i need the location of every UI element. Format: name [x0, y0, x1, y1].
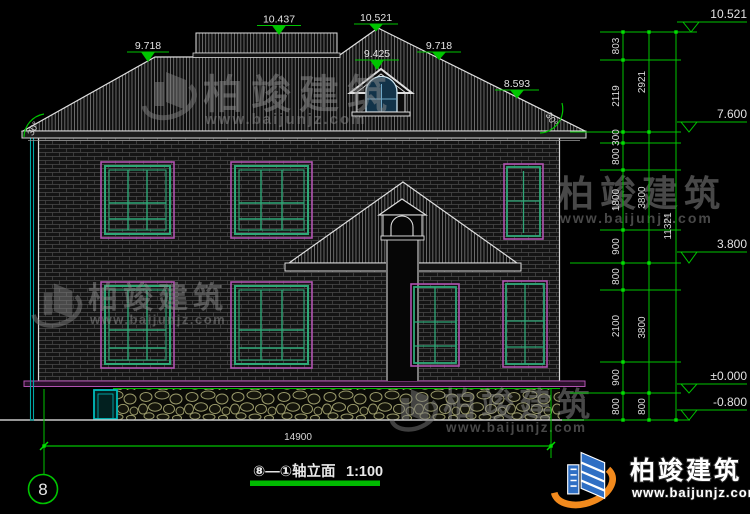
- level-triangle-icon: [681, 252, 697, 263]
- level-triangle-icon: [681, 410, 697, 420]
- elevation-drawing: 柏竣建筑 www.baijunjz.com 柏竣建筑 www.baijunjz.…: [0, 0, 750, 514]
- marker-value: 10.521: [360, 12, 392, 24]
- right-dimension-chains: 803 2119 300 800 1800 900 800 2100 900 8…: [562, 30, 697, 421]
- brand-logo-icon: [554, 452, 612, 504]
- downspout: [31, 138, 34, 420]
- marker-value: 9.718: [135, 40, 161, 52]
- brand-name: 柏竣建筑: [630, 456, 742, 485]
- dim-value: 800: [611, 148, 622, 165]
- rear-ridge-strip: [196, 33, 337, 53]
- watermark-url: www.baijunjz.com: [445, 420, 587, 435]
- overall-width-dim: 14900: [284, 432, 312, 443]
- elevation-marker: 10.437: [257, 14, 301, 36]
- watermark-url: www.baijunjz.com: [559, 210, 713, 226]
- marker-value: 9.718: [426, 40, 452, 52]
- dim-value: 2100: [611, 314, 622, 337]
- level-marker: 7.600: [677, 107, 747, 132]
- overall-height-dim: 11321: [663, 212, 674, 240]
- watermark-name: 柏竣建筑: [88, 281, 228, 315]
- dim-value: 3800: [637, 316, 648, 339]
- brand-url: www.baijunjz.com: [631, 485, 750, 500]
- axis-bubble: 8: [29, 475, 58, 504]
- axis-number: 8: [38, 480, 47, 499]
- dim-value: 1800: [611, 188, 622, 211]
- dim-value: 2921: [637, 70, 648, 93]
- watermark-name: 柏竣建筑: [443, 386, 595, 423]
- dim-value: 800: [637, 398, 648, 415]
- marker-value: 10.437: [263, 14, 295, 26]
- level-triangle-icon: [683, 22, 699, 32]
- level-marker: -0.800: [677, 395, 747, 420]
- marker-value: 9.425: [364, 48, 390, 60]
- elevation-marker: 10.521: [354, 12, 398, 32]
- level-triangle-icon: [681, 122, 697, 132]
- view-scale: 1:100: [346, 464, 383, 480]
- dim-value: 803: [611, 37, 622, 54]
- dim-value: 2119: [611, 85, 622, 107]
- dim-value: 800: [611, 398, 622, 415]
- level-triangle-icon: [681, 384, 697, 393]
- view-title: ⑧—①轴立面: [253, 462, 336, 480]
- inner-chain-values: 803 2119 300 800 1800 900 800 2100 900 8…: [611, 37, 622, 415]
- eave-fascia: [22, 131, 586, 138]
- level-value: 7.600: [717, 107, 747, 121]
- level-value: 10.521: [710, 7, 747, 21]
- level-value: 3.800: [717, 237, 747, 251]
- dim-value: 900: [611, 238, 622, 255]
- cad-elevation-screenshot: 柏竣建筑 www.baijunjz.com 柏竣建筑 www.baijunjz.…: [0, 0, 750, 514]
- marker-value: 8.593: [504, 78, 530, 90]
- watermark-url: www.baijunjz.com: [89, 312, 226, 327]
- level-marker: ±0.000: [677, 369, 747, 393]
- dim-value: 300: [611, 129, 622, 146]
- middle-chain-values: 2921 3800 3800 800: [637, 70, 648, 414]
- dim-value: 3800: [637, 186, 648, 209]
- level-value: ±0.000: [710, 369, 747, 383]
- entry-tower: [379, 199, 426, 381]
- dim-value: 800: [611, 268, 622, 285]
- dim-value: 900: [611, 369, 622, 386]
- level-marker: 3.800: [677, 237, 747, 263]
- title-underline: [250, 481, 380, 487]
- level-value: -0.800: [713, 395, 747, 409]
- level-marker: 10.521: [677, 7, 747, 32]
- title-block: ⑧—①轴立面 1:100: [250, 462, 383, 486]
- watermark-url: www.baijunjz.com: [204, 111, 366, 128]
- brand-logo: 柏竣建筑 www.baijunjz.com: [554, 452, 750, 504]
